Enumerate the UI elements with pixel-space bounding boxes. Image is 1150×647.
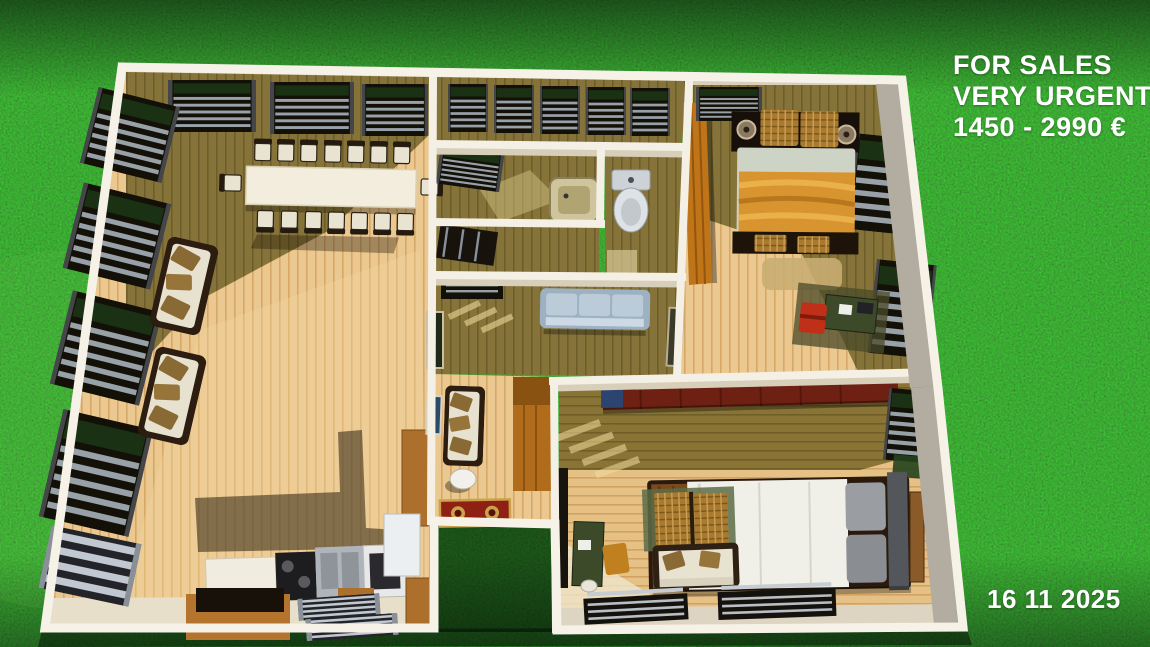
- bench-sofa2: [652, 543, 739, 590]
- low-cabinet: [406, 578, 432, 626]
- oval-stool: [450, 469, 476, 489]
- floorplan-building: [38, 67, 972, 647]
- toilet: [612, 170, 650, 232]
- sale-line-2: VERY URGENTE: [953, 81, 1150, 112]
- desk-red-chair: [792, 282, 890, 353]
- pillow-gray: [846, 534, 887, 583]
- room-top-hall: [448, 84, 670, 136]
- wc-sun-patch: [607, 250, 637, 276]
- headboard-gray: [887, 472, 909, 590]
- bench-sofa: [443, 385, 486, 466]
- desk: [572, 521, 604, 586]
- listing-image: FOR SALES VERY URGENTE 1450 - 2990 € 16 …: [0, 0, 1150, 647]
- window-blinds-icon: [586, 87, 626, 135]
- sale-line-1: FOR SALES: [953, 50, 1150, 81]
- sale-caption: FOR SALES VERY URGENTE 1450 - 2990 €: [953, 50, 1150, 143]
- window-blinds-icon: [448, 84, 488, 132]
- orange-chair: [602, 542, 630, 575]
- island-counter: [196, 588, 284, 612]
- double-bed-orange: [730, 109, 859, 254]
- bed-bench: [732, 231, 858, 254]
- window-blinds-icon: [168, 80, 256, 132]
- wicker-pillow: [760, 110, 798, 146]
- basket: [754, 235, 786, 252]
- wicker-pillow: [800, 111, 838, 147]
- nightstand: [910, 492, 924, 582]
- dining-table: [246, 166, 417, 208]
- window-blinds-icon: [362, 84, 428, 136]
- date-caption: 16 11 2025: [987, 584, 1121, 615]
- stool: [581, 580, 597, 592]
- window-blinds-icon: [630, 88, 670, 136]
- courtyard-grass-shadow: [436, 522, 554, 632]
- bathtub: [550, 178, 598, 222]
- sale-line-3: 1450 - 2990 €: [953, 112, 1150, 143]
- wicker-chests: [642, 486, 736, 551]
- tall-cabinet: [402, 430, 428, 526]
- room-wc: [612, 170, 650, 232]
- basket: [797, 236, 829, 253]
- window-blinds-icon: [494, 85, 534, 133]
- window-blinds-icon: [270, 82, 354, 134]
- window-blinds-icon: [540, 86, 580, 134]
- pillow-gray: [845, 482, 886, 531]
- fridge: [384, 514, 420, 576]
